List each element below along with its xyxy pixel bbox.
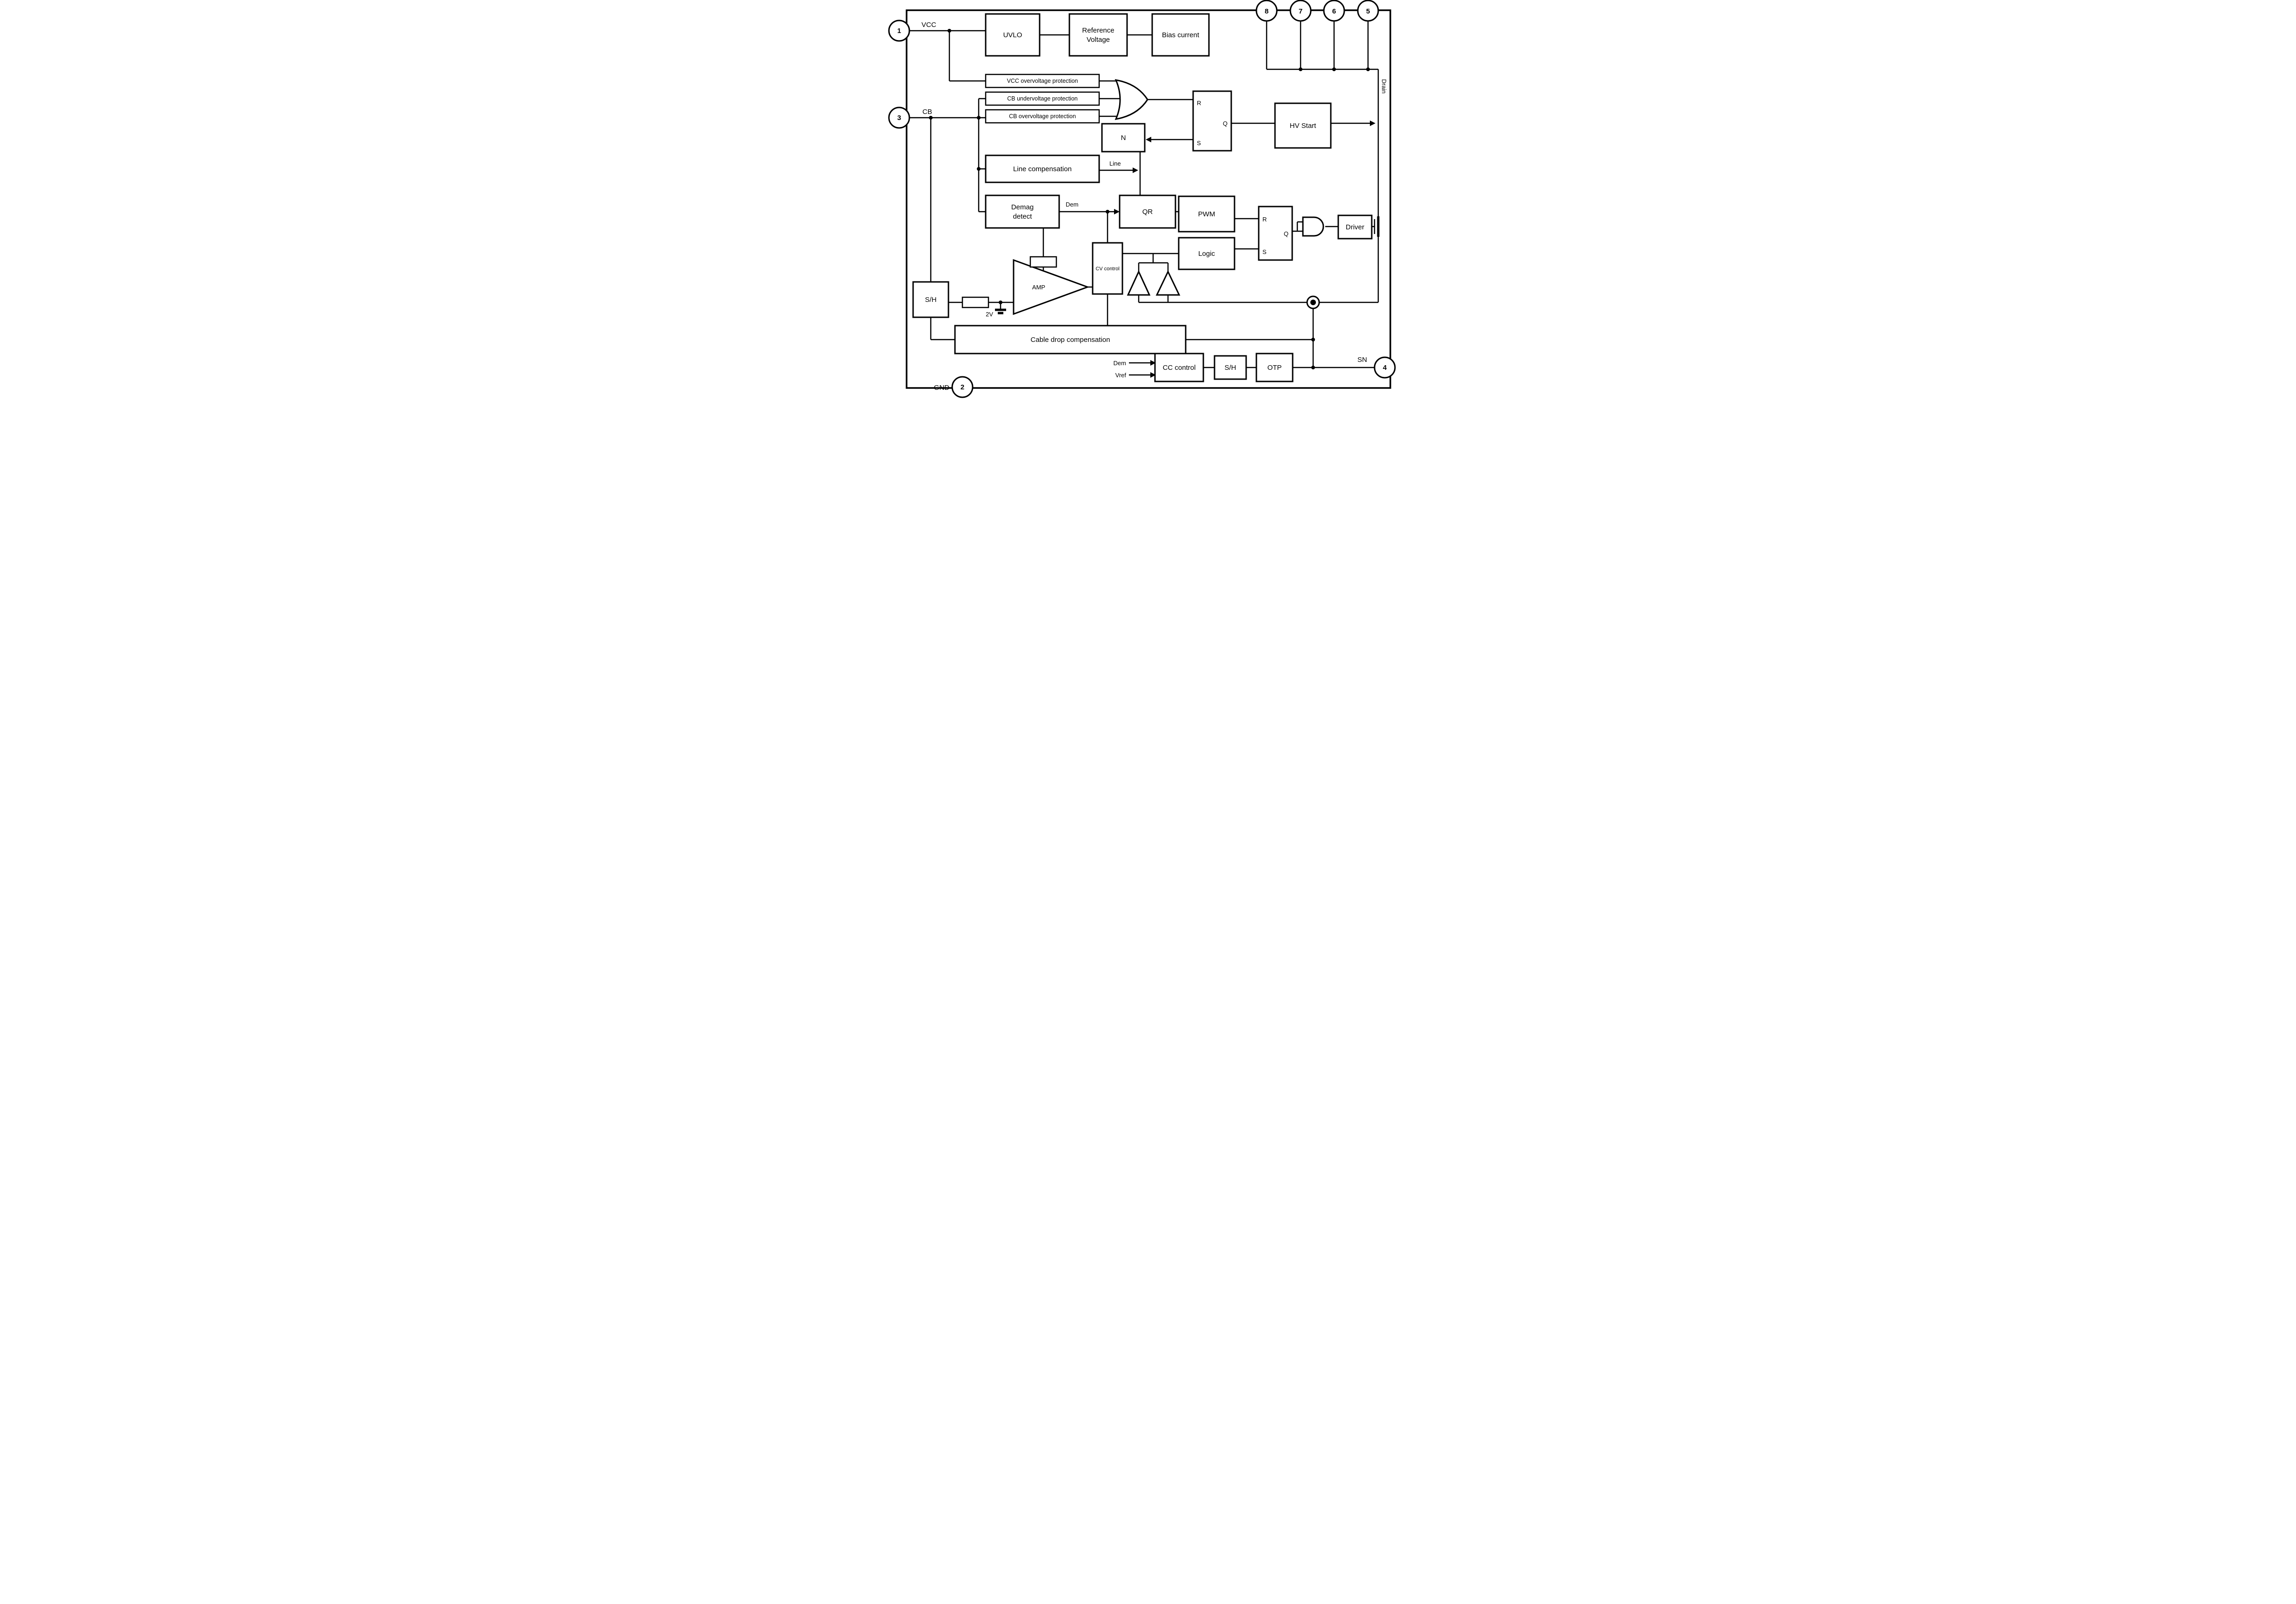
- hv-start-label: HV Start: [1290, 122, 1317, 130]
- block-diagram-page: UVLO Reference Voltage Bias current VCC …: [861, 0, 1435, 401]
- ic-block-diagram: UVLO Reference Voltage Bias current VCC …: [861, 0, 1435, 401]
- pwm-label: PWM: [1198, 210, 1215, 218]
- latch-protection: R Q S: [1193, 91, 1231, 151]
- latch2-s-label: S: [1262, 248, 1267, 255]
- otp-label: OTP: [1268, 364, 1282, 372]
- block-sample-hold-left: S/H: [913, 282, 948, 317]
- buffer-triangle-icon: [1157, 272, 1179, 295]
- block-qr: QR: [1120, 195, 1175, 228]
- block-reference-voltage: Reference Voltage: [1069, 14, 1127, 56]
- logic-label: Logic: [1198, 250, 1215, 258]
- reference-voltage-label-line2: Voltage: [1087, 36, 1110, 44]
- block-uvlo: UVLO: [986, 14, 1040, 56]
- demag-detect-label-line1: Demag: [1011, 203, 1034, 211]
- block-demag-detect: Demag detect: [986, 195, 1059, 228]
- pin-2-gnd: 2 GND: [934, 377, 973, 397]
- block-logic: Logic: [1179, 238, 1235, 269]
- pin-2-number: 2: [961, 383, 964, 391]
- block-driver: Driver: [1338, 215, 1372, 239]
- block-counter-n: N: [1102, 124, 1145, 152]
- sample-hold-left-label: S/H: [925, 296, 936, 304]
- buffer-triangle-icon: [1128, 272, 1149, 295]
- latch1-s-label: S: [1197, 140, 1201, 147]
- gnd-pin-label: GND: [934, 384, 950, 392]
- drain-pin-label: Drain: [1381, 79, 1388, 94]
- cv-control-label: CV control: [1095, 266, 1119, 272]
- block-line-compensation: Line compensation: [986, 155, 1099, 182]
- switch-demag-sample-icon: [1030, 257, 1056, 267]
- driver-label: Driver: [1346, 223, 1364, 231]
- cc-control-label: CC control: [1163, 364, 1196, 372]
- qr-label: QR: [1142, 208, 1153, 216]
- block-otp: OTP: [1256, 354, 1293, 381]
- line-compensation-label: Line compensation: [1013, 165, 1072, 173]
- pin-7-number: 7: [1299, 7, 1302, 15]
- block-cc-control: CC control: [1155, 354, 1203, 381]
- block-pwm: PWM: [1179, 196, 1235, 232]
- dem-signal-label: Dem: [1066, 201, 1078, 208]
- cable-drop-label: Cable drop compensation: [1031, 336, 1110, 344]
- demag-detect-label-line2: detect: [1013, 213, 1033, 221]
- switch-sh-sample-icon: [962, 297, 988, 307]
- latch2-q-label: Q: [1284, 230, 1288, 237]
- bias-current-label: Bias current: [1162, 31, 1200, 39]
- cb-ovp-label: CB overvoltage protection: [1009, 113, 1076, 120]
- block-vcc-overvoltage-protection: VCC overvoltage protection: [986, 74, 1099, 87]
- vcc-ovp-label: VCC overvoltage protection: [1007, 78, 1078, 84]
- vcc-pin-label: VCC: [921, 21, 936, 29]
- pin-1-number: 1: [897, 27, 901, 35]
- block-bias-current: Bias current: [1152, 14, 1209, 56]
- block-cb-overvoltage-protection: CB overvoltage protection: [986, 110, 1099, 123]
- pin-6-number: 6: [1332, 7, 1336, 15]
- block-cv-control: CV control: [1093, 243, 1122, 294]
- pin-5-number: 5: [1366, 7, 1370, 15]
- pin-3-number: 3: [897, 114, 901, 122]
- mosfet-icon: [1375, 216, 1378, 237]
- amp-label: AMP: [1032, 284, 1045, 291]
- reference-voltage-label-line1: Reference: [1082, 27, 1114, 34]
- sn-pin-label: SN: [1357, 356, 1367, 364]
- cb-pin-label: CB: [922, 108, 932, 116]
- and-gate-icon: [1303, 217, 1323, 236]
- sense-node-icon: [1307, 296, 1319, 308]
- or-gate-icon: [1116, 80, 1148, 119]
- pin-4-sn: 4 SN: [1357, 356, 1395, 378]
- pin-4-number: 4: [1383, 364, 1387, 372]
- line-signal-label: Line: [1109, 160, 1121, 167]
- latch2-r-label: R: [1262, 216, 1267, 223]
- sample-hold-bottom-label: S/H: [1224, 364, 1236, 372]
- latch1-r-label: R: [1197, 100, 1201, 107]
- block-cb-undervoltage-protection: CB undervoltage protection: [986, 92, 1099, 105]
- block-cable-drop-compensation: Cable drop compensation: [955, 326, 1186, 354]
- block-hv-start: HV Start: [1275, 103, 1331, 148]
- 2v-reference-label: 2V: [986, 311, 993, 318]
- uvlo-label: UVLO: [1003, 31, 1022, 39]
- pin-8-number: 8: [1265, 7, 1268, 15]
- dem-input-label: Dem: [1114, 360, 1126, 367]
- buffer-triangles: [1128, 272, 1179, 295]
- cb-uvp-label: CB undervoltage protection: [1007, 95, 1078, 102]
- error-amp: AMP: [1014, 260, 1088, 314]
- block-sample-hold-bottom: S/H: [1215, 356, 1246, 379]
- counter-n-label: N: [1121, 134, 1126, 142]
- vref-input-label: Vref: [1115, 372, 1127, 379]
- latch-driver: R Q S: [1259, 207, 1292, 260]
- latch1-q-label: Q: [1223, 120, 1228, 127]
